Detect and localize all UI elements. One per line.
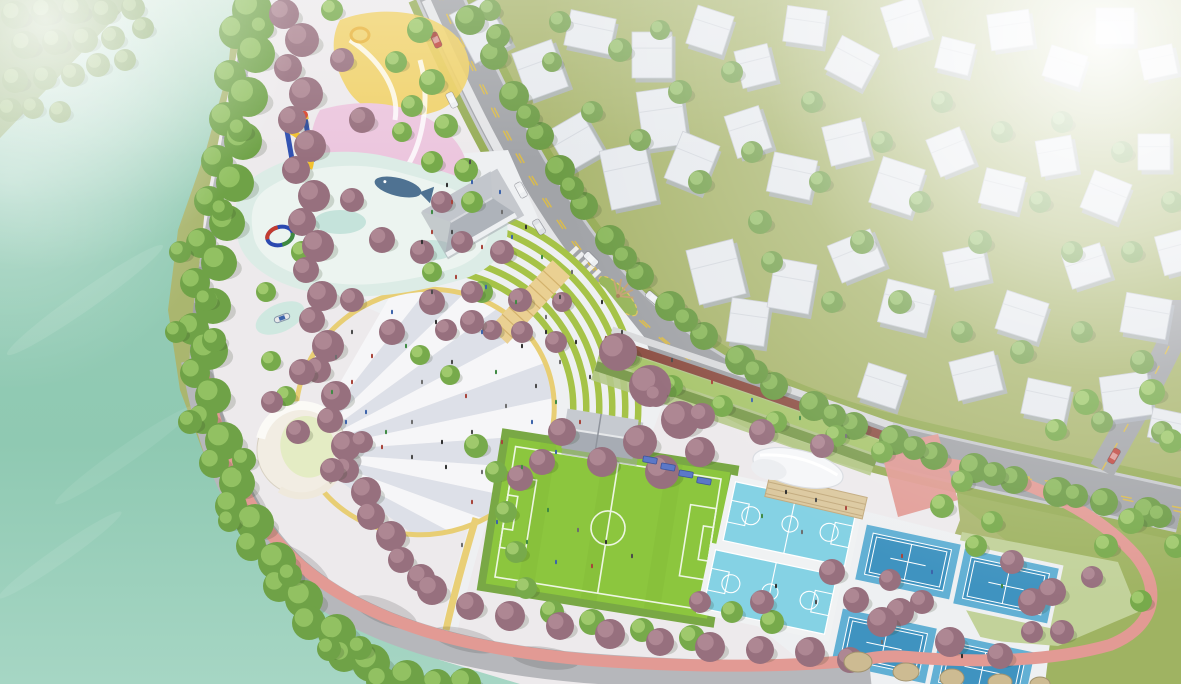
rendering-canvas [0, 0, 1181, 684]
scene-svg [0, 0, 1181, 684]
haze-top [0, 0, 1181, 160]
